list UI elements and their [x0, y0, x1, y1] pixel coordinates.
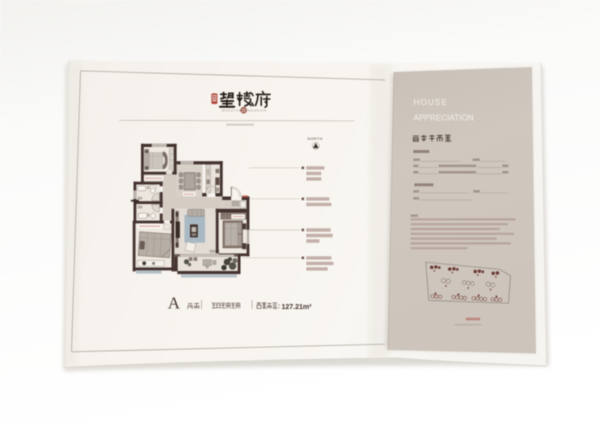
svg-text:127.21m²: 127.21m² — [282, 304, 313, 311]
svg-text:A: A — [168, 293, 181, 312]
svg-text:WANGYUE: WANGYUE — [222, 109, 242, 113]
svg-text:MANSION: MANSION — [248, 109, 267, 113]
svg-text:NORTH: NORTH — [308, 137, 323, 141]
svg-text:HOUSE: HOUSE — [414, 98, 449, 107]
svg-text:APPRECIATION: APPRECIATION — [414, 113, 474, 122]
